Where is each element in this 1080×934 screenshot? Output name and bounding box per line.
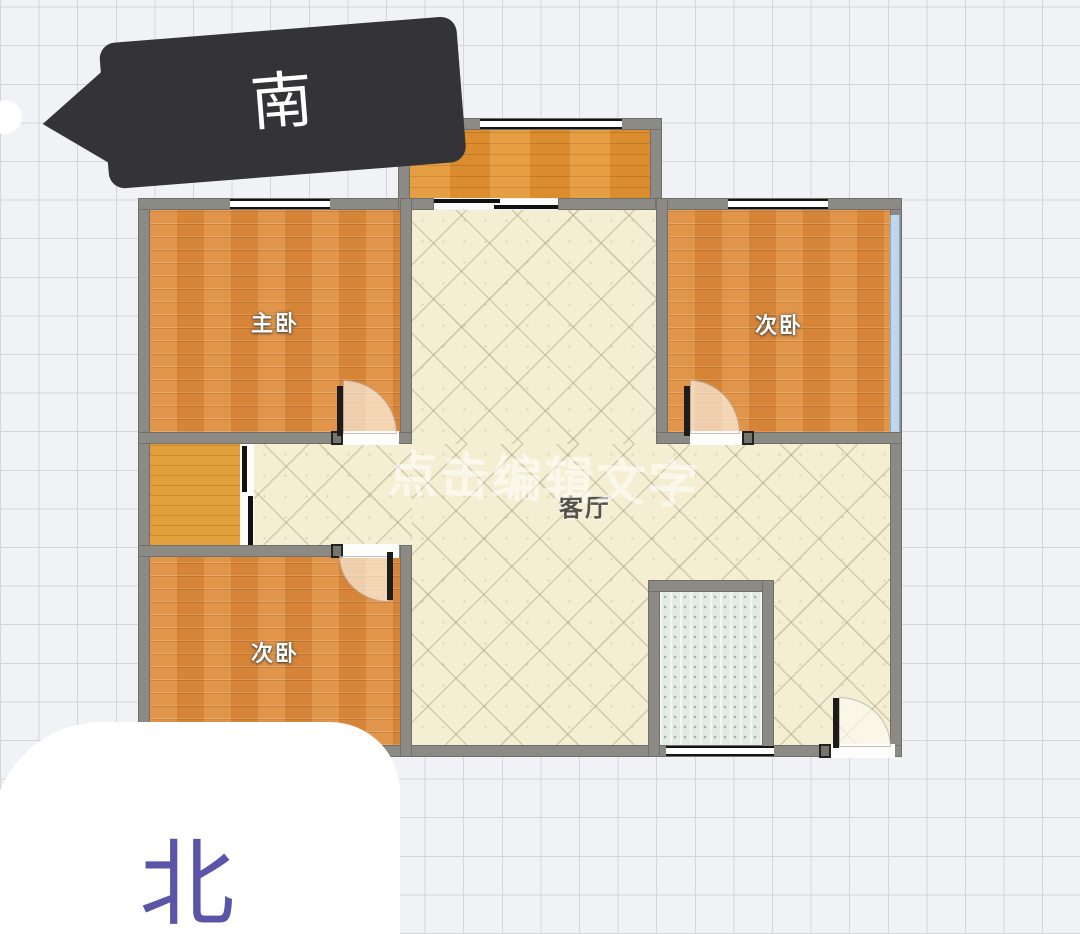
bathroom-floor [660,592,762,745]
watermark-text: 点击编辑文字 [387,434,702,518]
left-edge-dot [0,100,22,134]
entry-door-jamb [819,744,831,758]
bathroom-top-wall [648,580,774,592]
master-door-leaf [337,386,343,436]
bedroom-bottom-door-leaf [387,552,393,600]
floorplan-canvas: 主卧 次卧 次卧 客厅 点击编辑文字 南 北 [0,0,1080,934]
master-window [230,199,330,209]
north-label: 北 [87,838,287,933]
balcony-sill-right [558,198,656,210]
living-room-floor-column [412,210,656,444]
south-arrow-body: 南 [99,16,467,190]
balcony-sliding-door-panel-1 [434,199,500,203]
north-direction-panel: 北 [0,722,400,934]
bedroom-top-door-leaf [684,386,690,436]
left-wall [138,198,150,757]
bedroom-top-window [728,199,828,209]
balcony-right-wall [650,118,662,210]
storage-room-floor [150,444,241,545]
bedroom-top-left-wall [656,198,668,444]
second-bedroom-bottom-label: 次卧 [150,636,400,668]
balcony-sill-left [410,198,434,210]
south-arrow-tip-icon [37,51,135,186]
balcony-window [480,119,622,129]
balcony-sliding-door-panel-2 [494,205,558,209]
master-bedroom-label: 主卧 [150,306,400,338]
storage-sliding-door-panel-2 [248,496,253,545]
master-right-wall [400,198,412,444]
storage-sliding-door-panel-1 [242,446,247,492]
bathroom-right-wall [762,580,774,757]
bedroom-bottom-right-wall [400,545,412,757]
second-bedroom-top-label: 次卧 [668,308,890,340]
south-label: 南 [99,16,467,190]
side-window-glass [890,215,900,432]
bedroom-top-door-jamb [742,431,754,445]
entry-door-leaf [833,698,839,748]
bathroom-window [666,746,774,756]
bathroom-left-wall [648,580,660,757]
